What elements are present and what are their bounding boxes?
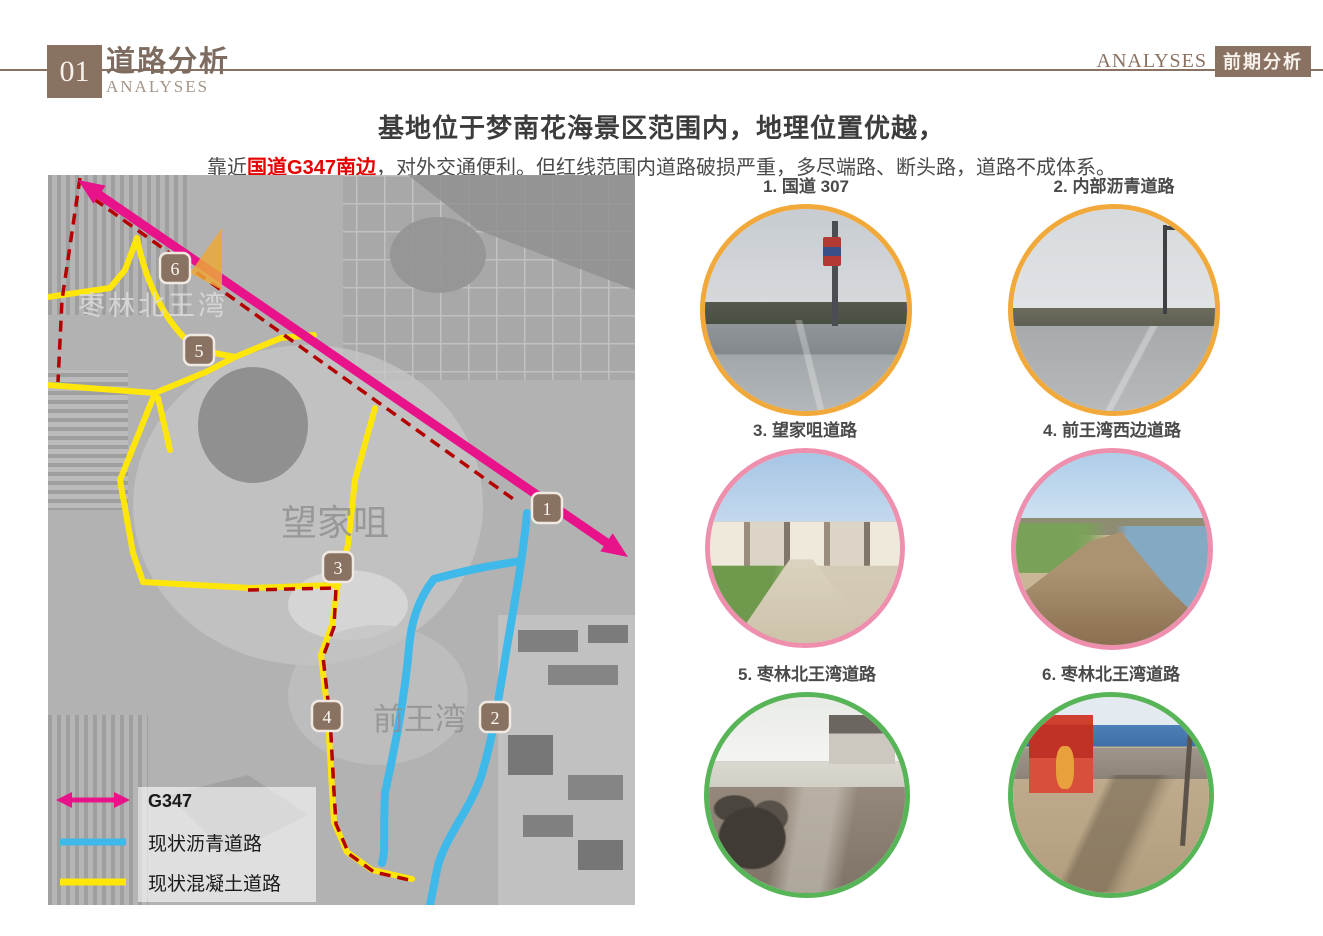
photo-image-guodao307 (705, 209, 907, 411)
photo-item-6: 6. 枣林北王湾道路 (1004, 660, 1218, 898)
photo-circle-5 (704, 692, 910, 898)
photo-caption-4: 4. 前王湾西边道路 (1043, 416, 1181, 441)
marker-1: 1 (532, 493, 562, 523)
photo-circle-2 (1008, 204, 1220, 416)
photo-item-2: 2. 内部沥青道路 (1006, 172, 1222, 416)
photo-circle-3 (705, 448, 905, 648)
header-right: ANALYSES 前期分析 (1097, 46, 1311, 77)
label-zaolin: 枣林北王湾 (78, 291, 228, 321)
photo-item-5: 5. 枣林北王湾道路 (700, 660, 914, 898)
photo-item-4: 4. 前王湾西边道路 (1008, 416, 1216, 650)
slide: 01 道路分析 ANALYSES ANALYSES 前期分析 基地位于梦南花海景… (0, 0, 1323, 936)
photo-caption-6: 6. 枣林北王湾道路 (1042, 660, 1180, 685)
photo-caption-1: 1. 国道 307 (763, 172, 849, 197)
marker-3: 3 (323, 552, 353, 582)
svg-text:1: 1 (543, 499, 552, 519)
label-wangjiaju: 望家咀 (281, 502, 389, 543)
village-house (829, 715, 896, 764)
road-sign (823, 237, 841, 265)
intro-headline: 基地位于梦南花海景区范围内，地理位置优越， (0, 108, 1323, 145)
site-map-svg: 枣林北王湾 望家咀 前王湾 6 5 3 (48, 175, 635, 905)
photo-caption-2: 2. 内部沥青道路 (1054, 172, 1175, 197)
intro-block: 基地位于梦南花海景区范围内，地理位置优越， 靠近国道G347南边，对外交通便利。… (0, 108, 1323, 180)
legend-g347-label: G347 (148, 791, 192, 811)
section-title-en: ANALYSES (106, 77, 209, 97)
gold-ornament (1056, 746, 1074, 789)
section-title: 道路分析 (106, 38, 230, 80)
photo-image-asphalt-road (1013, 209, 1215, 411)
street-lamp-head (1176, 220, 1186, 228)
marker-4: 4 (312, 701, 342, 731)
photo-circle-6 (1008, 692, 1214, 898)
photo-item-1: 1. 国道 307 (698, 172, 914, 416)
marker-6: 6 (160, 253, 190, 283)
header-right-en: ANALYSES (1097, 50, 1207, 73)
marker-2: 2 (480, 702, 510, 732)
svg-text:2: 2 (491, 708, 500, 728)
label-qianwangwan: 前王湾 (373, 702, 466, 737)
photo-caption-3: 3. 望家咀道路 (753, 416, 857, 441)
legend-asphalt-label: 现状沥青道路 (148, 833, 262, 855)
section-number: 01 (47, 45, 102, 98)
photo-caption-5: 5. 枣林北王湾道路 (738, 660, 876, 685)
photo-circle-1 (700, 204, 912, 416)
legend-concrete-label: 现状混凝土道路 (148, 873, 281, 895)
site-map: 枣林北王湾 望家咀 前王湾 6 5 3 (48, 175, 635, 905)
header-right-tag: 前期分析 (1215, 46, 1311, 77)
svg-text:3: 3 (334, 558, 343, 578)
street-lamp-pole (1163, 225, 1167, 314)
photo-item-3: 3. 望家咀道路 (702, 416, 908, 648)
photo-circle-4 (1011, 448, 1213, 650)
svg-text:4: 4 (323, 707, 332, 727)
svg-text:6: 6 (171, 259, 180, 279)
marker-5: 5 (184, 335, 214, 365)
svg-text:5: 5 (195, 341, 204, 361)
